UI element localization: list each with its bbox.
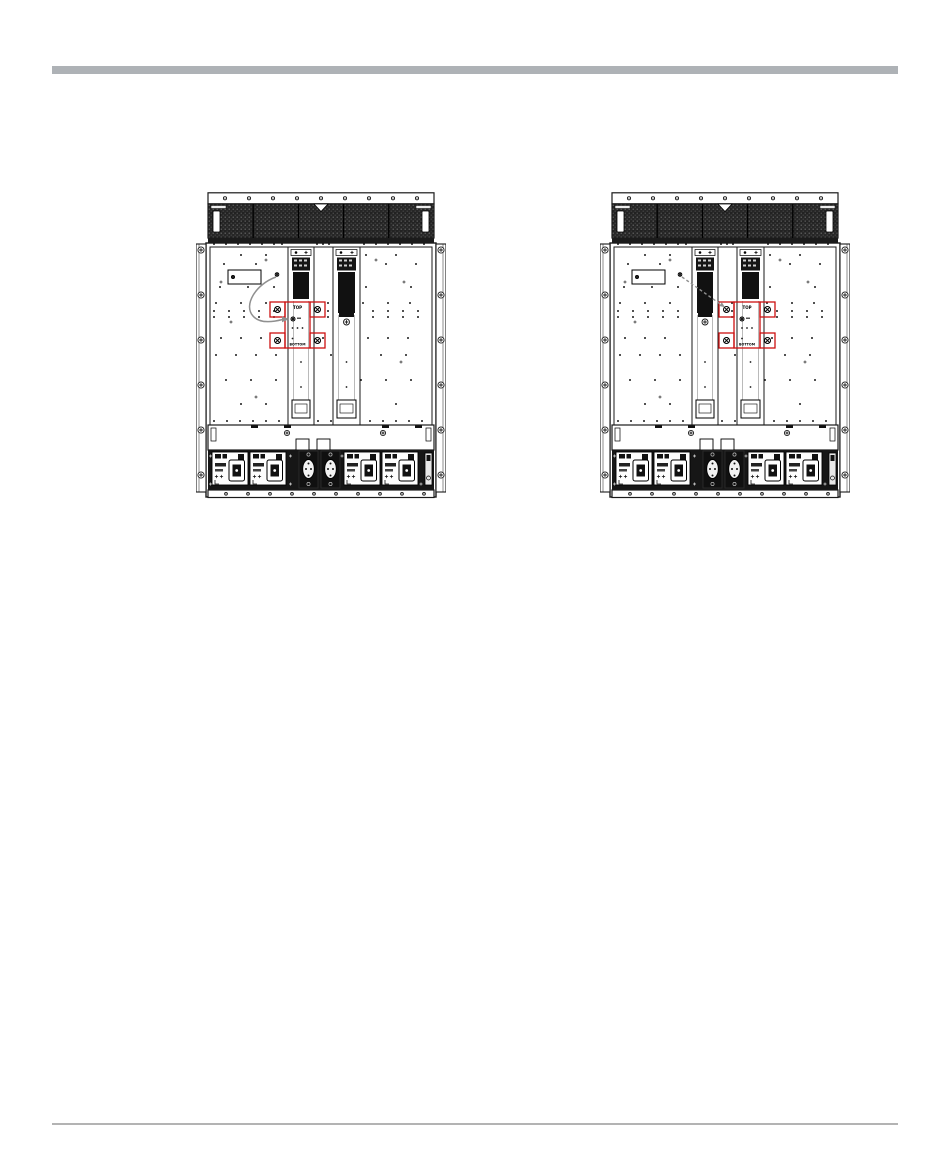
psu-module	[616, 452, 652, 485]
psu-module	[382, 452, 418, 485]
slot-connector	[696, 258, 714, 271]
chassis-diagram-left: TOPBOTTOM	[196, 192, 446, 500]
serial-label-box	[632, 270, 665, 284]
slot-connector	[337, 258, 356, 271]
psu-latch	[829, 453, 836, 485]
midplane-section	[208, 425, 434, 450]
bottom-screw-strip	[208, 490, 434, 498]
psu-module	[654, 452, 690, 485]
psu-module	[786, 452, 822, 485]
figure-chassis-rear-left: TOPBOTTOM	[196, 192, 446, 500]
psu-module	[212, 452, 248, 485]
card-connector-block	[742, 272, 759, 299]
bottom-screw-label: BOTTOM	[290, 343, 306, 347]
rack-flange-left	[600, 244, 610, 492]
manual-page: TOPBOTTOM TOPBOTTOM	[0, 0, 950, 1153]
top-screw-label: TOP	[742, 305, 751, 310]
card-slot-1	[692, 247, 718, 425]
top-screw-label: TOP	[293, 305, 302, 310]
rack-flange-right	[436, 244, 446, 492]
rack-flange-left	[196, 244, 206, 492]
chassis: TOPBOTTOM	[600, 193, 850, 498]
fan-handle-left	[213, 211, 220, 232]
bottom-screw-label: BOTTOM	[739, 343, 755, 347]
top-screw-strip	[208, 193, 434, 204]
card-connector-block	[293, 272, 309, 299]
midplane-section	[612, 425, 838, 450]
power-connector	[321, 451, 340, 488]
figure-chassis-rear-right: TOPBOTTOM	[600, 192, 850, 500]
psu-latch	[425, 453, 432, 485]
card-connector-block	[338, 272, 355, 313]
chassis-diagram-right: TOPBOTTOM	[600, 192, 850, 500]
psu-module	[344, 452, 380, 485]
power-connector	[299, 451, 318, 488]
serial-label-box	[228, 270, 261, 284]
fan-tray	[208, 204, 434, 243]
psu-bay	[612, 450, 838, 490]
psu-module	[748, 452, 784, 485]
psu-module	[250, 452, 286, 485]
chassis: TOPBOTTOM	[196, 193, 446, 498]
footer-rule	[52, 1123, 898, 1125]
bottom-screw-strip	[612, 490, 838, 498]
fan-handle-right	[826, 211, 833, 232]
top-screw-strip	[612, 193, 838, 204]
rack-flange-right	[840, 244, 850, 492]
fan-handle-right	[422, 211, 429, 232]
fan-tray	[612, 204, 838, 243]
power-connector	[725, 451, 744, 488]
psu-bay	[208, 450, 434, 490]
fan-handle-left	[617, 211, 624, 232]
slot-connector	[741, 258, 760, 271]
card-slot-2	[333, 247, 360, 425]
header-rule	[52, 66, 898, 74]
power-connector	[703, 451, 722, 488]
slot-connector	[292, 258, 310, 271]
